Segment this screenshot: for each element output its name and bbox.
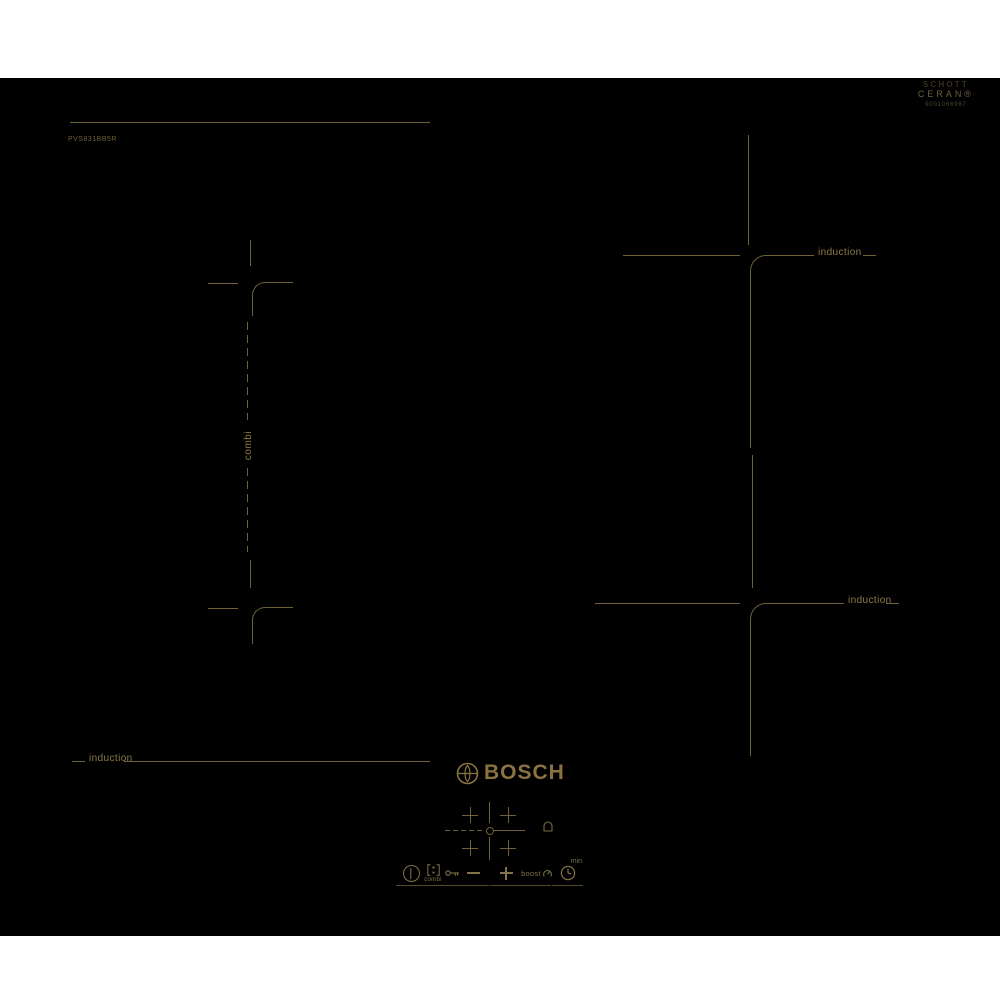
- combi-zone-label: combi: [233, 430, 265, 460]
- display-center-indicator: [486, 827, 494, 835]
- product-photo: PVS831BB5R SCHOTT CERAN® 9001066987 comb…: [0, 0, 1000, 1000]
- power-button[interactable]: [396, 861, 426, 886]
- induction-label-bottom-right-tail-line: [886, 603, 899, 604]
- bosch-wordmark: BOSCH: [484, 761, 565, 785]
- timer-unit-label: min: [560, 858, 582, 865]
- schott-ceran-logo: SCHOTT CERAN® 9001066987: [918, 80, 974, 108]
- display-cross-vertical-bottom: [489, 837, 490, 860]
- display-cross-dashed-left: [445, 830, 483, 831]
- combi-button[interactable]: combi: [424, 864, 442, 883]
- combi-zone-upper-left-dash: [208, 283, 238, 284]
- display-cross-vertical-top: [489, 802, 490, 823]
- boost-gauge-icon: [543, 869, 552, 878]
- combi-zone-label-text: combi: [244, 430, 255, 459]
- induction-label-top-right-tail-line: [863, 255, 876, 256]
- zone-select-plus-rear-right[interactable]: [500, 840, 516, 856]
- combi-zone-dashed-link-lower: [247, 468, 248, 552]
- zone-select-plus-rear-left[interactable]: [462, 840, 478, 856]
- right-top-zone-horizontal-line: [623, 255, 740, 256]
- combi-zone-dashed-link-upper: [247, 322, 248, 420]
- induction-label-bottom-right: induction: [848, 595, 892, 606]
- zone-select-plus-front-left[interactable]: [462, 807, 478, 823]
- top-trim-line: [70, 122, 430, 123]
- bosch-logo: BOSCH: [456, 761, 565, 785]
- model-number: PVS831BB5R: [68, 136, 117, 143]
- combi-and-childlock-keys: combi: [426, 861, 458, 886]
- combi-zone-upper-corner: [252, 282, 293, 316]
- induction-label-bottom-left: induction: [89, 753, 133, 764]
- clock-icon: [560, 865, 576, 881]
- bosch-anchor-icon: [456, 762, 479, 785]
- combi-bridge-icon: [427, 864, 440, 876]
- ceran-code: 9001066987: [918, 102, 974, 109]
- boost-button[interactable]: boost: [522, 861, 551, 886]
- right-mid-vertical-line: [752, 455, 753, 588]
- zone-select-plus-front-right[interactable]: [500, 807, 516, 823]
- power-increase-button[interactable]: [490, 861, 522, 886]
- combi-zone-mid-tick: [250, 560, 251, 588]
- schott-brand: SCHOTT: [918, 80, 974, 89]
- combi-button-label: combi: [424, 877, 442, 883]
- induction-label-bottom-left-tail-line: [124, 761, 430, 762]
- induction-label-top-right: induction: [818, 247, 862, 258]
- boost-button-label: boost: [521, 869, 541, 878]
- bell-icon: [542, 820, 554, 833]
- ceran-wordmark: CERAN®: [918, 89, 974, 99]
- right-bottom-zone-horizontal-line: [595, 603, 740, 604]
- plus-icon: [500, 867, 513, 880]
- induction-label-bottom-left-lead-line: [72, 761, 85, 762]
- right-top-zone-corner: [750, 255, 814, 448]
- power-decrease-button[interactable]: [458, 861, 489, 886]
- right-top-zone-vertical-line: [748, 135, 749, 245]
- combi-zone-lower-left-dash: [208, 608, 238, 609]
- combi-zone-lower-corner: [252, 607, 293, 644]
- combi-zone-top-tick: [250, 240, 251, 266]
- power-icon: [403, 865, 420, 882]
- right-bottom-zone-corner: [750, 603, 844, 756]
- display-cross-solid-right: [493, 830, 525, 831]
- cooktop-surface: PVS831BB5R SCHOTT CERAN® 9001066987 comb…: [0, 78, 1000, 936]
- minus-icon: [467, 872, 480, 874]
